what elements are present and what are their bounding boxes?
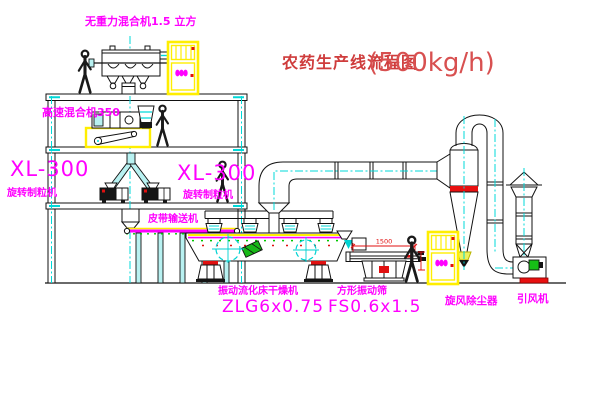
floor-slab-top [46, 94, 247, 101]
discharge-duct [122, 209, 139, 228]
control-cabinet-ground [428, 232, 458, 284]
belt-conveyor-label: 皮带输送机 [147, 212, 198, 225]
floor-slab-lower [46, 203, 247, 209]
dryer-foot-left [196, 261, 225, 282]
cyclone-separator [450, 115, 517, 276]
fluid-bed-dryer [186, 211, 347, 282]
mixer-discharge-chute [122, 83, 135, 94]
dim-1500-text: 1500 [376, 238, 393, 246]
induced-draft-fan [513, 257, 548, 283]
conveyor-leg [158, 233, 163, 283]
conveyor-leg [180, 233, 185, 283]
cyclone-label: 旋风除尘器 [444, 294, 498, 307]
dryer-foot-right [304, 261, 333, 282]
granulator-left [100, 183, 128, 203]
dryer-model-label: ZLG6x0.75 [222, 297, 324, 317]
drawing-canvas: 1500 340 无重力混合机1.5 立方 农药生产线流程图 (500kg/h)… [0, 0, 600, 403]
person-top-floor [79, 51, 91, 93]
high-speed-mixer-label: 高速混合机350 [42, 105, 120, 119]
cyclone-inlet-reducer [437, 154, 450, 188]
control-cabinet-top [168, 42, 198, 94]
cad-process-flow-drawing: 1500 340 无重力混合机1.5 立方 农药生产线流程图 (500kg/h)… [0, 0, 600, 403]
fan-label: 引风机 [517, 292, 549, 305]
screen-feed-box [352, 238, 366, 250]
granulator-mid-model: XL-300 [177, 161, 256, 185]
dryer-label: 振动流化床干燥机 [218, 284, 298, 297]
granulator-mid-name: 旋转制粒机 [182, 188, 233, 201]
fan-base [520, 278, 548, 283]
page-title-capacity: (500kg/h) [368, 48, 495, 78]
fan-motor [529, 260, 539, 270]
pipe-bend-inner [472, 124, 487, 133]
granulator-left-name: 旋转制粒机 [6, 186, 57, 199]
screen-model-label: FS0.6x1.5 [328, 297, 421, 317]
gravity-mixer-label: 无重力混合机1.5 立方 [84, 14, 196, 28]
conveyor-roller [124, 228, 129, 233]
person-middle-floor [157, 106, 168, 146]
screen-vibrator [379, 266, 389, 273]
conveyor-leg [136, 233, 141, 283]
gravity-free-mixer [89, 46, 174, 94]
screen-label: 方形振动筛 [337, 284, 387, 297]
granulator-left-model: XL-300 [10, 157, 89, 181]
conveyor-belt [126, 230, 238, 233]
